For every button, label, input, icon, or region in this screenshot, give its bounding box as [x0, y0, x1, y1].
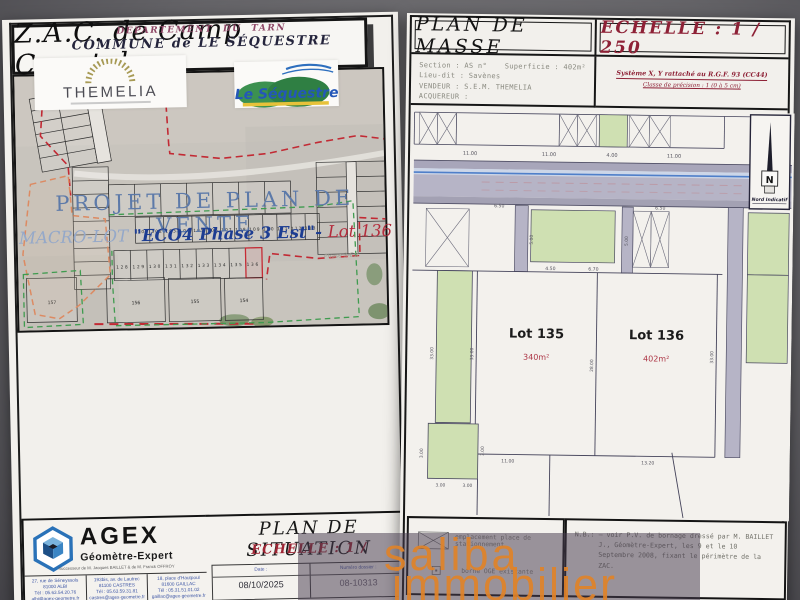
- green-strip-left: [435, 270, 472, 422]
- sequestre-logo-icon: Le Séquestre: [234, 60, 339, 108]
- sequestre-logo: Le Séquestre: [234, 60, 339, 108]
- office-albi: 27, rue de Séneyssols 81000 ALBI Tél : 0…: [25, 575, 86, 600]
- georef-block: Système X, Y rattaché au R.G.F. 93 (CC44…: [595, 57, 788, 111]
- plan-de-masse-document: PLAN DE MASSE ECHELLE : 1 / 250 Section …: [399, 13, 795, 600]
- plan-masse-title-cell: PLAN DE MASSE: [411, 17, 596, 57]
- agex-offices: 27, rue de Séneyssols 81000 ALBI Tél : 0…: [25, 572, 210, 600]
- vendeur-label: VENDEUR : S.E.M. THEMELIA: [419, 82, 532, 92]
- themelia-arch-icon: [80, 58, 141, 85]
- dim-top1: 11.00: [463, 151, 477, 157]
- dim-top3: 4.00: [606, 153, 617, 159]
- plan-masse-scale: ECHELLE : 1 / 250: [600, 17, 785, 60]
- dim-low2: 13.20: [641, 460, 654, 466]
- sequestre-name: Le Séquestre: [235, 85, 339, 103]
- road-band: [413, 160, 792, 208]
- masse-plan-drawing: 11.00 11.00 4.00 11.00: [407, 108, 795, 521]
- dim-left2: 33.00: [469, 347, 475, 360]
- map-lot-154: 154: [239, 298, 248, 304]
- dim-center: 28.00: [589, 359, 595, 372]
- left-doc-frame: DEPARTEMENT DU TARN COMMUNE de LE SÉQUES…: [9, 15, 405, 600]
- north-caption: Nord Indicatif: [752, 197, 789, 204]
- plan-masse-title: PLAN DE MASSE: [415, 13, 590, 59]
- macro-lot-number: Lot 136: [328, 221, 393, 241]
- macro-lot-prefix: MACRO-LOT: [19, 226, 134, 247]
- dim-g4: 3.00: [462, 483, 472, 489]
- north-letter: N: [766, 175, 774, 186]
- dim-v2: 5.00: [624, 236, 630, 246]
- themelia-tagline-bar: [71, 101, 151, 105]
- dim-top4: 11.00: [667, 154, 681, 160]
- north-arrow: N Nord Indicatif: [749, 115, 790, 210]
- section-label: Section : AS n°: [419, 61, 487, 70]
- agex-name: AGEX: [80, 522, 161, 552]
- plan-de-vente-document: DEPARTEMENT DU TARN COMMUNE de LE SÉQUES…: [2, 12, 410, 600]
- right-doc-frame: PLAN DE MASSE ECHELLE : 1 / 250 Section …: [402, 15, 791, 600]
- watermark-line2: immobilier: [392, 559, 617, 600]
- themelia-name: THEMELIA: [34, 82, 186, 102]
- georef-precision: Classe de précision : 1 (0 à 5 cm): [596, 82, 788, 91]
- macro-lot-name: "ECO4 Phase 3 Est": [133, 222, 315, 245]
- watermark-band: saliba immobilier: [298, 533, 700, 600]
- dim-low1: 11.00: [501, 458, 514, 464]
- agex-subtitle: Géomètre-Expert: [80, 550, 173, 564]
- date-cell: Date : 08/10/2025: [212, 564, 309, 600]
- map-lot-156: 156: [132, 300, 141, 306]
- dim-mid1: 6.50: [494, 203, 504, 209]
- lot-136-label: Lot 136: [629, 328, 684, 344]
- agex-block: AGEX Géomètre-Expert Successeur de M. Ja…: [21, 515, 211, 600]
- macro-lot-sep: -: [315, 222, 328, 241]
- green-block-bottom: [428, 423, 479, 479]
- dim-v1: 5.00: [529, 235, 535, 245]
- photo-background: DEPARTEMENT DU TARN COMMUNE de LE SÉQUES…: [0, 0, 800, 600]
- green-area-right: [746, 275, 788, 364]
- lieu-dit-label: Lieu-dit : Savènes: [419, 71, 500, 80]
- plan-masse-header: PLAN DE MASSE ECHELLE : 1 / 250 Section …: [411, 17, 789, 110]
- parcel-info-block: Section : AS n° Superficie : 402m² Lieu-…: [411, 54, 596, 108]
- dim-b2: 6.70: [588, 267, 598, 273]
- road-right: [725, 208, 743, 458]
- dim-right1: 33.00: [709, 351, 715, 364]
- lane-1: [514, 206, 528, 272]
- green-area-1: [531, 210, 616, 263]
- acquereur-label: ACQUEREUR :: [419, 92, 469, 101]
- lot-136-area: 402m²: [643, 354, 669, 363]
- georef-system: Système X, Y rattaché au R.G.F. 93 (CC44…: [616, 69, 767, 81]
- dim-mid2: 6.50: [655, 205, 665, 211]
- green-area-2: [747, 213, 789, 276]
- dim-left1: 33.00: [429, 347, 435, 360]
- office-gaillac: 18, place d'Hautpoul 81600 GAILLAC Tél :…: [147, 573, 209, 600]
- dim-g2: 3.00: [480, 446, 486, 456]
- dim-top2: 11.00: [542, 152, 556, 158]
- dim-b1: 4.50: [545, 266, 555, 272]
- lot-135-area: 340m²: [523, 353, 549, 362]
- map-lot-155: 155: [190, 299, 199, 305]
- date-value: 08/10/2025: [213, 576, 310, 600]
- lot-135-label: Lot 135: [509, 326, 564, 342]
- dim-g1: 3.00: [419, 448, 425, 458]
- plan-masse-scale-cell: ECHELLE : 1 / 250: [596, 20, 789, 60]
- dim-g3: 3.00: [435, 482, 445, 488]
- office-castres: 193bis, av. de Lautrec 81100 CASTRES Tél…: [85, 574, 147, 600]
- themelia-logo: THEMELIA: [34, 55, 187, 110]
- superficie-label: Superficie : 402m²: [505, 62, 586, 71]
